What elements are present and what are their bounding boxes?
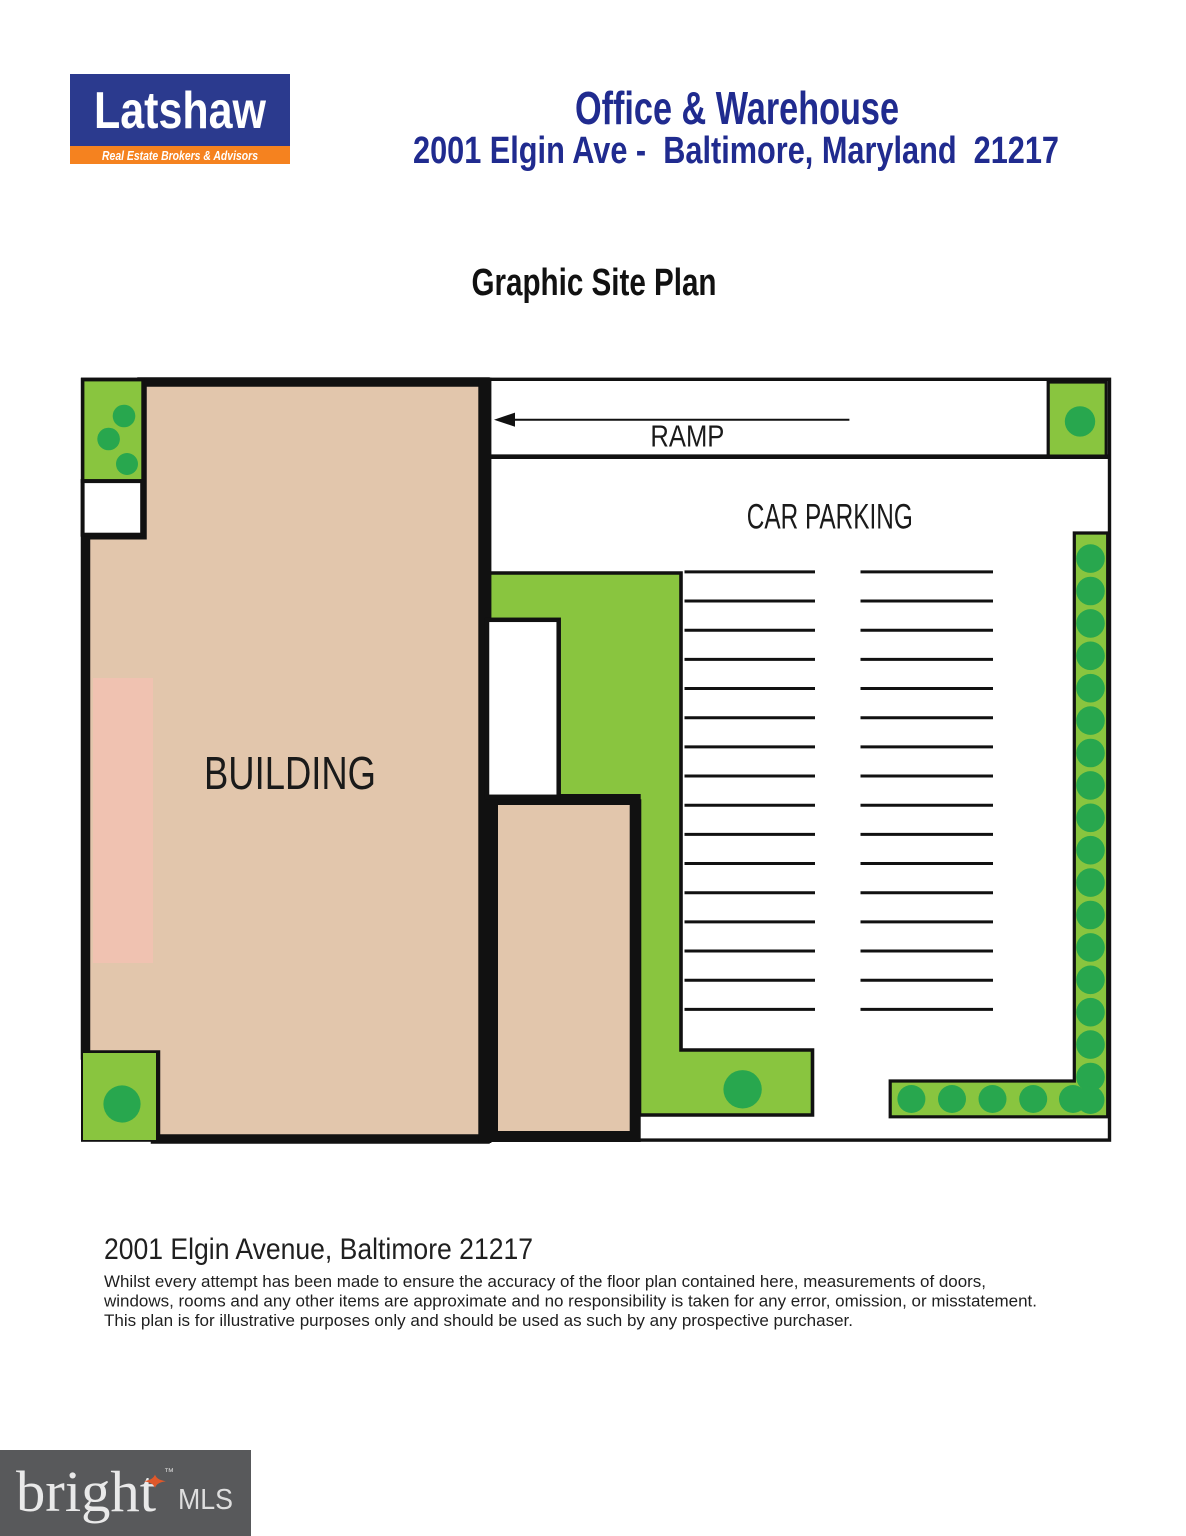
svg-text:Whilst every attempt has been: Whilst every attempt has been made to en… [104,1272,986,1291]
svg-text:Graphic Site Plan: Graphic Site Plan [472,262,717,304]
svg-text:Office & Warehouse: Office & Warehouse [575,82,899,134]
svg-text:RAMP: RAMP [650,419,724,454]
svg-text:Real Estate Brokers & Advisors: Real Estate Brokers & Advisors [102,148,258,163]
svg-text:windows, rooms and any other i: windows, rooms and any other items are a… [103,1292,1037,1311]
svg-text:MLS: MLS [178,1484,233,1516]
svg-text:Latshaw: Latshaw [94,82,266,140]
svg-text:2001 Elgin Ave - Baltimore, M: 2001 Elgin Ave - Baltimore, Maryland 212… [413,130,1059,172]
svg-text:™: ™ [164,1467,174,1478]
svg-text:BUILDING: BUILDING [204,747,376,799]
svg-text:CAR PARKING: CAR PARKING [747,498,913,537]
svg-text:bright: bright [16,1459,156,1524]
svg-text:This plan is for illustrative: This plan is for illustrative purposes o… [104,1311,853,1330]
svg-text:2001 Elgin Avenue, Baltimore 2: 2001 Elgin Avenue, Baltimore 21217 [104,1233,533,1266]
